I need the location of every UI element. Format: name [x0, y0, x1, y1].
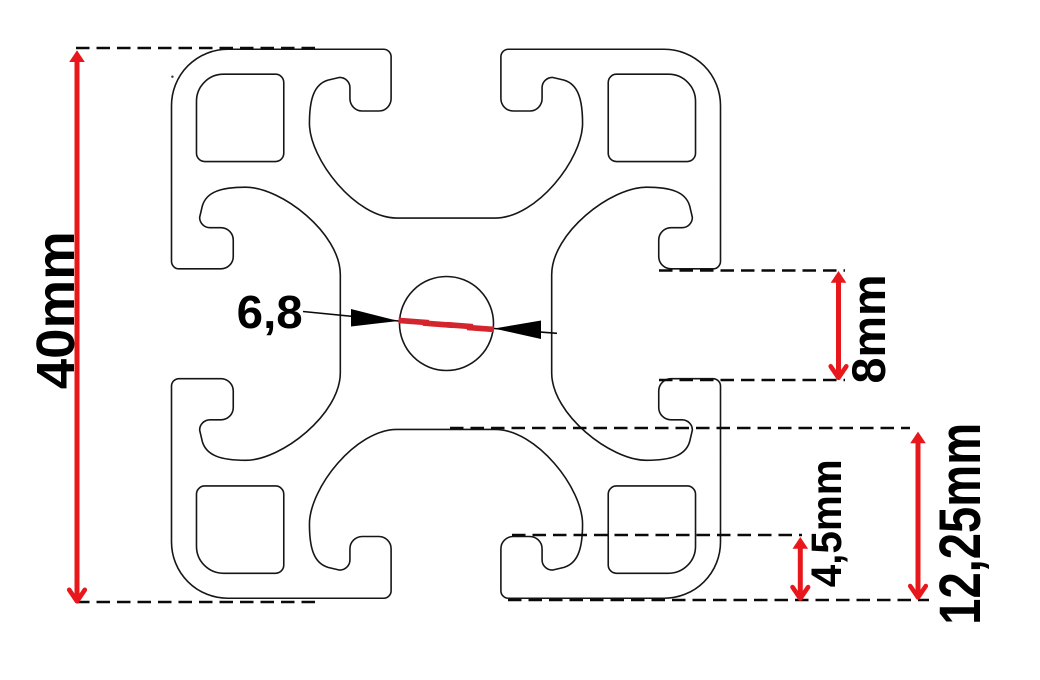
svg-text:8mm: 8mm	[842, 275, 895, 384]
svg-text:4,5mm: 4,5mm	[803, 459, 851, 587]
svg-text:12,25mm: 12,25mm	[928, 423, 993, 625]
svg-text:6,8: 6,8	[237, 286, 303, 338]
svg-text:40mm: 40mm	[26, 231, 86, 389]
